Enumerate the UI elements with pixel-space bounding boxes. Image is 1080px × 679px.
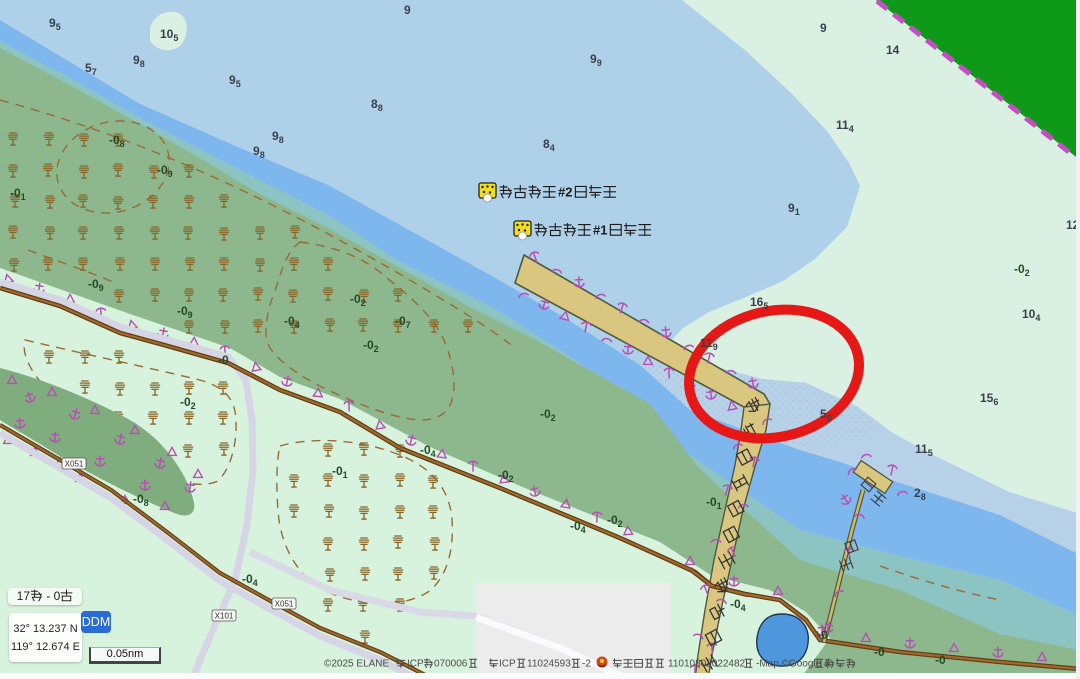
svg-text:-0: -0 [874, 645, 885, 659]
svg-text:ICP: ICP [407, 659, 424, 670]
svg-text:11024593: 11024593 [527, 659, 571, 670]
svg-text:ICP: ICP [499, 659, 516, 670]
svg-text:-Map ©Google &: -Map ©Google & [756, 659, 831, 670]
svg-text:©2025 ELANE: ©2025 ELANE [324, 659, 390, 670]
svg-text:11010802022482: 11010802022482 [668, 659, 746, 670]
svg-text:X051: X051 [65, 460, 84, 469]
svg-text:14: 14 [886, 43, 900, 57]
svg-text:-0: -0 [817, 628, 828, 642]
svg-text:9: 9 [820, 21, 827, 35]
svg-text:#1: #1 [593, 223, 607, 238]
svg-text:#2: #2 [558, 185, 572, 200]
svg-text:9: 9 [404, 3, 411, 17]
svg-text:-0: -0 [935, 653, 946, 667]
svg-text:-2: -2 [582, 659, 591, 670]
svg-text:070006: 070006 [434, 659, 468, 670]
svg-text:X051: X051 [275, 600, 294, 609]
svg-text:-0: -0 [218, 353, 229, 367]
svg-text:X101: X101 [215, 612, 234, 621]
